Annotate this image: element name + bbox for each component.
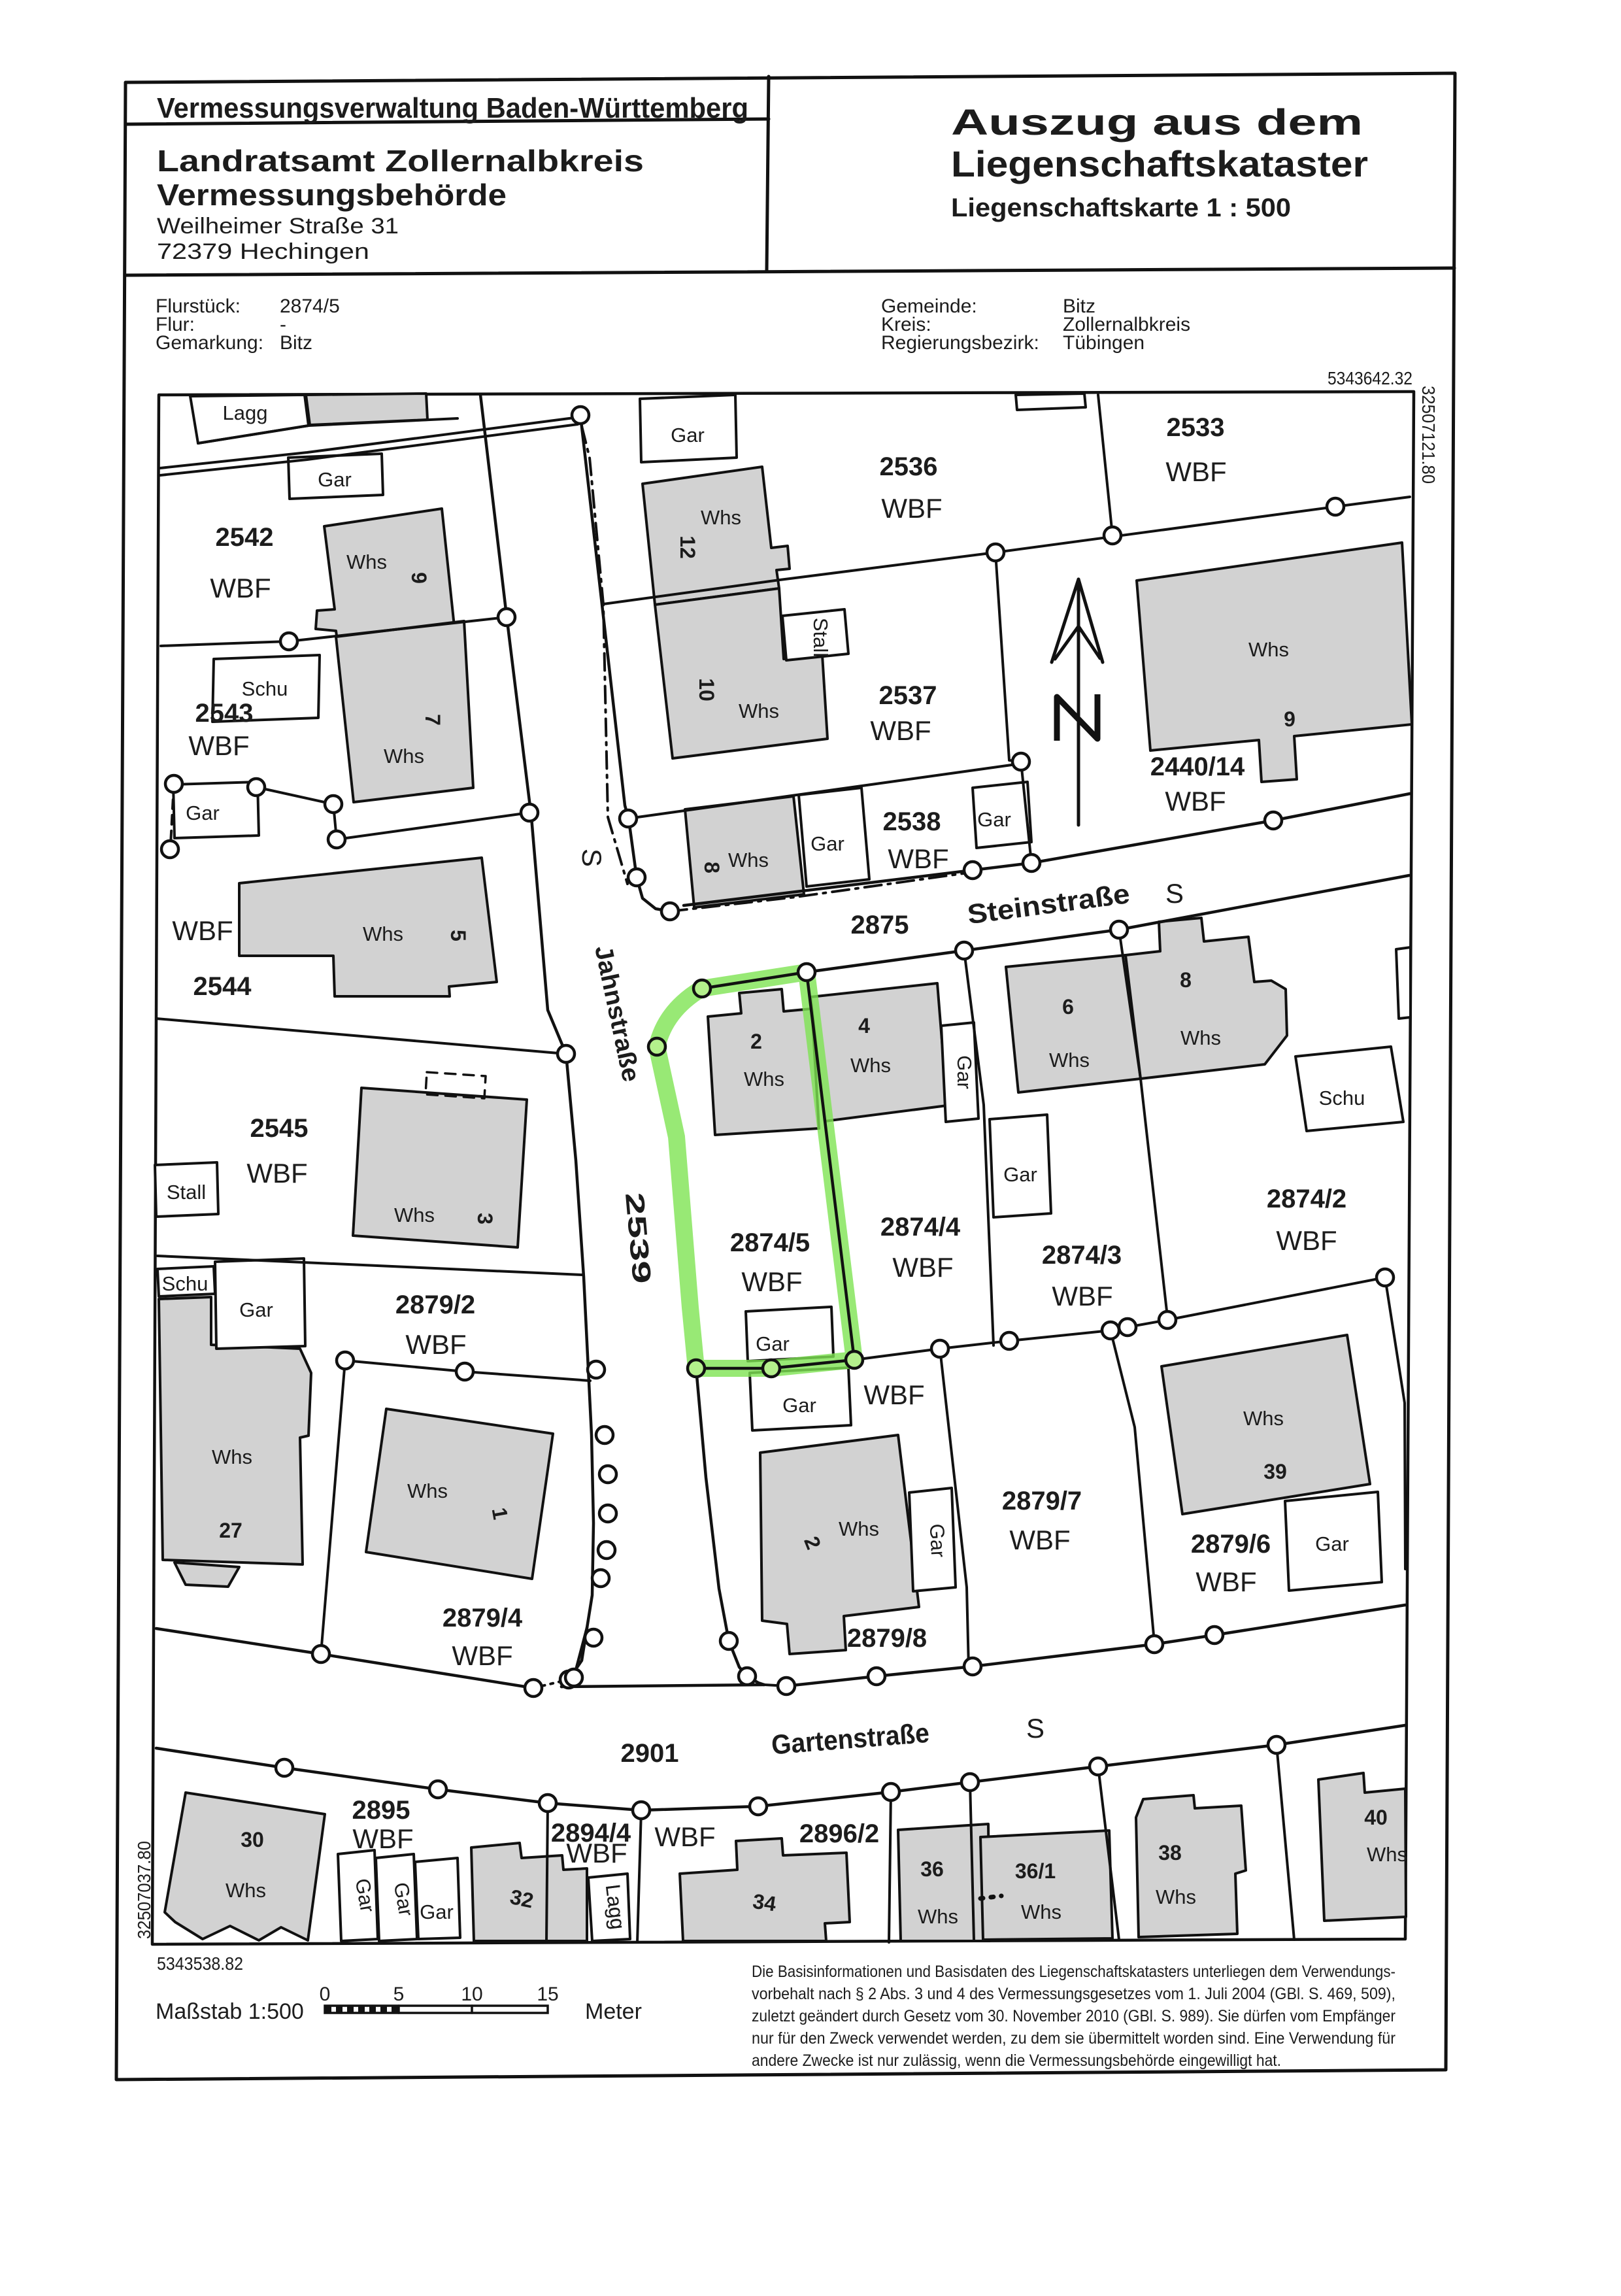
svg-text:5: 5 xyxy=(393,1984,405,2005)
svg-text:Weilheimer Straße 31: Weilheimer Straße 31 xyxy=(157,214,399,239)
svg-text:Whs: Whs xyxy=(850,1054,891,1077)
svg-text:S: S xyxy=(1026,1713,1044,1744)
svg-text:Gartenstraße: Gartenstraße xyxy=(770,1717,930,1761)
svg-text:Whs: Whs xyxy=(1367,1843,1407,1866)
svg-text:WBF: WBF xyxy=(654,1821,715,1852)
svg-text:WBF: WBF xyxy=(1052,1281,1112,1311)
svg-text:27: 27 xyxy=(219,1519,242,1542)
svg-text:2533: 2533 xyxy=(1167,413,1225,442)
svg-text:4: 4 xyxy=(858,1014,870,1038)
svg-text:WBF: WBF xyxy=(1276,1225,1337,1256)
svg-text:WBF: WBF xyxy=(870,715,931,746)
svg-text:2879/6: 2879/6 xyxy=(1191,1530,1271,1559)
svg-text:10: 10 xyxy=(461,1984,482,2005)
svg-text:5343538.82: 5343538.82 xyxy=(157,1953,243,1974)
svg-text:9: 9 xyxy=(407,572,431,584)
svg-text:2879/7: 2879/7 xyxy=(1002,1487,1082,1515)
svg-text:34: 34 xyxy=(751,1889,777,1916)
svg-text:Lagg: Lagg xyxy=(223,401,268,424)
svg-text:Whs: Whs xyxy=(739,700,779,722)
svg-text:Vermessungsbehörde: Vermessungsbehörde xyxy=(157,178,507,212)
svg-text:WBF: WBF xyxy=(452,1640,512,1671)
svg-text:7: 7 xyxy=(421,714,444,726)
svg-text:Regierungsbezirk:: Regierungsbezirk: xyxy=(881,332,1039,354)
svg-text:Whs: Whs xyxy=(407,1479,448,1502)
svg-text:8: 8 xyxy=(1180,968,1192,992)
svg-text:WBF: WBF xyxy=(863,1379,924,1410)
svg-text:2538: 2538 xyxy=(883,807,941,836)
svg-text:WBF: WBF xyxy=(566,1838,627,1868)
svg-text:Bitz: Bitz xyxy=(280,332,312,354)
svg-text:Gemarkung:: Gemarkung: xyxy=(156,332,263,354)
svg-text:40: 40 xyxy=(1364,1806,1388,1829)
svg-text:nur für den Zweck verwendet we: nur für den Zweck verwendet werden, zu d… xyxy=(752,2029,1395,2048)
svg-text:Jahnstraße: Jahnstraße xyxy=(589,943,644,1084)
svg-text:36/1: 36/1 xyxy=(1015,1859,1056,1883)
svg-text:Schu: Schu xyxy=(242,677,288,700)
svg-text:Liegenschaftskataster: Liegenschaftskataster xyxy=(951,143,1368,184)
svg-text:32507121.80: 32507121.80 xyxy=(1418,386,1439,484)
svg-text:2874/3: 2874/3 xyxy=(1042,1241,1122,1270)
svg-text:Whs: Whs xyxy=(1243,1407,1284,1430)
svg-text:WBF: WBF xyxy=(1165,786,1226,817)
svg-text:Steinstraße: Steinstraße xyxy=(965,878,1131,930)
svg-text:2537: 2537 xyxy=(879,681,937,710)
svg-text:WBF: WBF xyxy=(1009,1525,1070,1555)
svg-text:2879/4: 2879/4 xyxy=(443,1604,523,1632)
svg-text:5: 5 xyxy=(446,930,470,941)
svg-text:38: 38 xyxy=(1158,1841,1182,1865)
svg-text:Gar: Gar xyxy=(186,802,220,824)
svg-text:Vermessungsverwaltung Baden-Wü: Vermessungsverwaltung Baden-Württemberg xyxy=(157,92,748,124)
svg-text:10: 10 xyxy=(695,678,718,701)
svg-text:Whs: Whs xyxy=(384,745,424,768)
svg-text:36: 36 xyxy=(920,1857,944,1881)
svg-text:WBF: WBF xyxy=(741,1266,802,1297)
svg-text:Gar: Gar xyxy=(420,1900,454,1923)
svg-text:Liegenschaftskarte 1 : 500: Liegenschaftskarte 1 : 500 xyxy=(951,194,1291,222)
svg-text:Gar: Gar xyxy=(671,424,705,447)
svg-text:Gar: Gar xyxy=(756,1332,790,1355)
svg-text:Whs: Whs xyxy=(346,550,387,573)
svg-text:2875: 2875 xyxy=(851,911,909,939)
svg-text:Whs: Whs xyxy=(1021,1900,1061,1923)
svg-text:72379 Hechingen: 72379 Hechingen xyxy=(157,239,369,264)
svg-text:Whs: Whs xyxy=(1180,1026,1221,1049)
svg-text:WBF: WBF xyxy=(246,1158,307,1189)
svg-text:2545: 2545 xyxy=(250,1114,309,1143)
svg-text:Whs: Whs xyxy=(839,1517,879,1540)
svg-text:Whs: Whs xyxy=(701,506,741,529)
svg-text:WBF: WBF xyxy=(352,1823,413,1854)
svg-text:WBF: WBF xyxy=(188,730,249,761)
svg-text:Gar: Gar xyxy=(318,468,352,491)
svg-text:2874/5: 2874/5 xyxy=(280,295,340,317)
svg-text:30: 30 xyxy=(241,1828,264,1851)
svg-text:Whs: Whs xyxy=(394,1204,435,1226)
svg-text:Whs: Whs xyxy=(226,1879,266,1902)
svg-text:Whs: Whs xyxy=(212,1445,252,1468)
svg-text:Schu: Schu xyxy=(162,1272,209,1295)
svg-text:2543: 2543 xyxy=(195,699,254,728)
svg-text:Landratsamt Zollernalbkreis: Landratsamt Zollernalbkreis xyxy=(157,144,644,178)
svg-text:WBF: WBF xyxy=(888,843,948,874)
svg-text:2874/4: 2874/4 xyxy=(880,1213,961,1241)
svg-text:Stall: Stall xyxy=(167,1181,206,1204)
svg-text:2895: 2895 xyxy=(352,1796,410,1825)
svg-text:3: 3 xyxy=(473,1213,497,1224)
svg-text:Die Basisinformationen und Bas: Die Basisinformationen und Basisdaten de… xyxy=(752,1963,1395,1981)
svg-text:8: 8 xyxy=(700,862,724,873)
svg-text:S: S xyxy=(577,849,607,867)
svg-text:Whs: Whs xyxy=(744,1068,784,1090)
svg-text:2879/2: 2879/2 xyxy=(395,1291,475,1319)
svg-text:2536: 2536 xyxy=(880,452,938,481)
svg-text:2874/2: 2874/2 xyxy=(1267,1185,1346,1213)
svg-text:Gar: Gar xyxy=(782,1394,816,1417)
svg-text:15: 15 xyxy=(537,1984,558,2005)
svg-text:WBF: WBF xyxy=(1195,1566,1256,1597)
svg-text:WBF: WBF xyxy=(892,1252,953,1283)
svg-text:Maßstab 1:500: Maßstab 1:500 xyxy=(156,1999,304,2024)
svg-text:2: 2 xyxy=(750,1030,762,1053)
svg-text:12: 12 xyxy=(676,535,699,559)
svg-text:Whs: Whs xyxy=(728,849,769,871)
svg-text:Gar: Gar xyxy=(1003,1163,1037,1186)
svg-text:WBF: WBF xyxy=(881,493,942,524)
svg-text:0: 0 xyxy=(320,1984,331,2005)
svg-text:Meter: Meter xyxy=(585,1999,642,2024)
svg-text:Gar: Gar xyxy=(977,808,1011,831)
svg-text:Gar: Gar xyxy=(926,1523,950,1558)
svg-text:39: 39 xyxy=(1263,1460,1287,1483)
svg-text:Gar: Gar xyxy=(239,1298,273,1321)
svg-text:Whs: Whs xyxy=(1156,1885,1196,1908)
svg-text:Whs: Whs xyxy=(918,1905,958,1928)
svg-text:S: S xyxy=(1165,878,1184,909)
svg-text:9: 9 xyxy=(1284,707,1295,731)
svg-text:2544: 2544 xyxy=(193,972,252,1001)
svg-text:andere Zwecke ist nur zulässig: andere Zwecke ist nur zulässig, wenn die… xyxy=(752,2051,1281,2070)
svg-text:32: 32 xyxy=(508,1885,535,1913)
svg-text:Whs: Whs xyxy=(363,922,403,945)
svg-text:Stall: Stall xyxy=(809,618,832,657)
svg-text:Schu: Schu xyxy=(1319,1087,1365,1109)
svg-text:Whs: Whs xyxy=(1049,1049,1090,1072)
svg-text:Gar: Gar xyxy=(811,832,844,855)
svg-text:2539: 2539 xyxy=(620,1191,656,1285)
svg-text:Tübingen: Tübingen xyxy=(1063,332,1145,354)
svg-text:Gar: Gar xyxy=(953,1055,976,1089)
svg-text:Auszug aus dem: Auszug aus dem xyxy=(951,101,1363,143)
svg-text:Gar: Gar xyxy=(1315,1532,1349,1555)
svg-text:WBF: WBF xyxy=(1165,456,1226,487)
svg-text:zuletzt geändert durch Gesetz: zuletzt geändert durch Gesetz vom 30. No… xyxy=(752,2007,1395,2025)
svg-text:2542: 2542 xyxy=(216,523,274,552)
svg-text:2874/5: 2874/5 xyxy=(730,1228,810,1257)
svg-text:2440/14: 2440/14 xyxy=(1150,752,1245,781)
svg-text:2879/8: 2879/8 xyxy=(847,1624,927,1653)
svg-text:vorbehalt nach § 2 Abs. 3 und: vorbehalt nach § 2 Abs. 3 und 4 des Verm… xyxy=(752,1985,1395,2003)
svg-text:WBF: WBF xyxy=(172,915,233,946)
svg-text:2896/2: 2896/2 xyxy=(799,1819,879,1848)
svg-text:6: 6 xyxy=(1062,995,1074,1019)
svg-text:2901: 2901 xyxy=(621,1739,679,1768)
svg-text:5343642.32: 5343642.32 xyxy=(1328,368,1412,388)
svg-text:Whs: Whs xyxy=(1248,638,1289,661)
svg-text:WBF: WBF xyxy=(405,1329,466,1360)
svg-text:WBF: WBF xyxy=(210,573,271,603)
